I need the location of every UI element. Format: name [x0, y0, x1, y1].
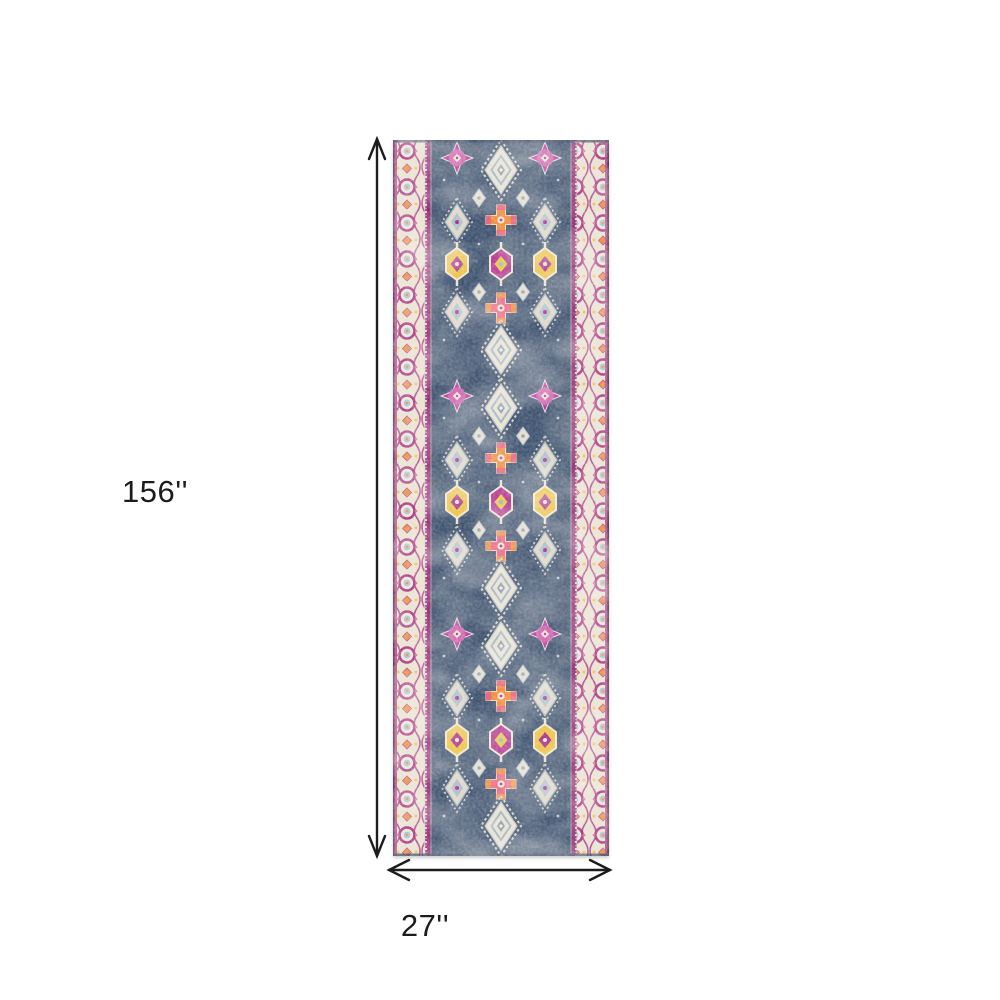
rug-speckle-overlay [393, 140, 609, 856]
rug-graphic [393, 140, 609, 856]
width-dimension-arrow [384, 856, 616, 884]
width-dimension-label: 27'' [370, 908, 480, 944]
height-dimension-arrow [360, 130, 396, 866]
height-dimension-label: 156'' [100, 474, 210, 510]
rug-image [393, 140, 609, 856]
diagram-canvas: 156'' 27'' [0, 0, 1000, 1000]
